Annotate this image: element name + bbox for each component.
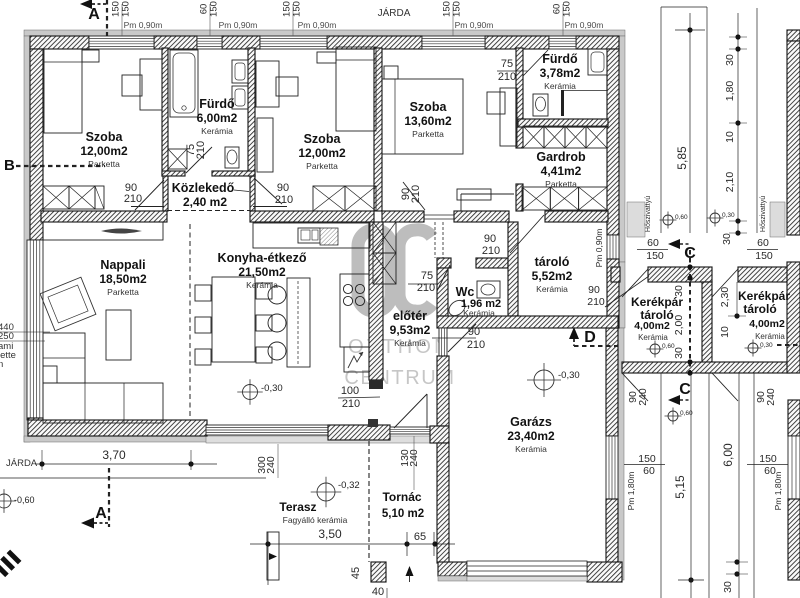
svg-text:Pm 0,90m: Pm 0,90m [298, 20, 337, 30]
svg-text:2,30: 2,30 [719, 287, 731, 308]
svg-text:60: 60 [757, 237, 769, 249]
svg-text:Közlekedő: Közlekedő [172, 181, 235, 195]
svg-text:Hőszivattyú: Hőszivattyú [760, 196, 767, 232]
svg-text:150: 150 [452, 1, 463, 17]
svg-text:150: 150 [646, 250, 664, 262]
svg-text:150: 150 [121, 1, 132, 17]
svg-text:Parketta: Parketta [412, 129, 444, 139]
svg-text:Nappali: Nappali [100, 258, 145, 272]
svg-text:Pm 0,90m: Pm 0,90m [565, 20, 604, 30]
svg-text:210: 210 [195, 141, 207, 159]
svg-text:Parketta: Parketta [107, 287, 139, 297]
svg-text:Fürdő: Fürdő [542, 52, 578, 66]
svg-text:Szoba: Szoba [304, 132, 342, 146]
svg-text:150: 150 [759, 453, 777, 465]
svg-text:150: 150 [209, 1, 220, 17]
svg-text:JÁRDA: JÁRDA [378, 6, 411, 19]
svg-text:D: D [584, 329, 596, 346]
svg-text:30: 30 [673, 347, 685, 359]
svg-text:5,10 m2: 5,10 m2 [382, 508, 424, 520]
svg-text:1,80: 1,80 [724, 81, 736, 102]
svg-text:150: 150 [638, 453, 656, 465]
svg-text:6,00m2: 6,00m2 [197, 111, 238, 125]
svg-text:A: A [88, 6, 100, 23]
svg-text:10: 10 [719, 326, 731, 338]
svg-text:0,30: 0,30 [760, 342, 773, 349]
svg-text:5,15: 5,15 [673, 475, 687, 499]
svg-text:0,30: 0,30 [722, 212, 735, 219]
svg-text:Kerámia: Kerámia [246, 280, 278, 290]
svg-text:30: 30 [722, 581, 734, 593]
svg-text:45: 45 [350, 567, 362, 579]
svg-text:23,40m2: 23,40m2 [507, 429, 555, 443]
svg-text:Terasz: Terasz [279, 500, 316, 514]
svg-text:Kerámia: Kerámia [544, 81, 576, 91]
svg-text:30: 30 [721, 233, 733, 245]
svg-text:210: 210 [275, 194, 293, 206]
svg-text:Wc: Wc [456, 285, 475, 299]
svg-text:10: 10 [724, 131, 736, 143]
svg-text:90: 90 [277, 182, 289, 194]
svg-text:Kerámia: Kerámia [394, 338, 426, 348]
svg-text:2,40 m2: 2,40 m2 [183, 195, 227, 209]
svg-text:tároló: tároló [743, 302, 776, 316]
svg-text:30: 30 [673, 285, 685, 297]
svg-text:210: 210 [410, 185, 422, 203]
svg-text:12,00m2: 12,00m2 [80, 144, 128, 158]
svg-text:90: 90 [588, 284, 600, 296]
svg-text:210: 210 [587, 296, 605, 308]
svg-text:21,50m2: 21,50m2 [238, 265, 286, 279]
svg-text:Pm 0,90m: Pm 0,90m [455, 20, 494, 30]
svg-text:0,60: 0,60 [662, 343, 675, 350]
svg-text:előtér: előtér [393, 309, 427, 323]
svg-text:150: 150 [755, 250, 773, 262]
svg-text:240: 240 [637, 388, 649, 406]
svg-text:4,00m2: 4,00m2 [634, 320, 670, 332]
svg-text:Parketta: Parketta [88, 159, 120, 169]
svg-text:30: 30 [724, 54, 736, 66]
svg-text:3,50: 3,50 [318, 527, 342, 541]
svg-text:Pm 0,90m: Pm 0,90m [124, 20, 163, 30]
svg-text:Tornác: Tornác [382, 490, 421, 504]
svg-text:-0,30: -0,30 [558, 370, 580, 381]
svg-text:Pm 1,80m: Pm 1,80m [773, 472, 783, 511]
svg-text:9,53m2: 9,53m2 [390, 323, 431, 337]
svg-text:5,85: 5,85 [675, 146, 689, 170]
svg-text:Fagyálló kerámia: Fagyálló kerámia [283, 515, 348, 525]
svg-text:60: 60 [647, 237, 659, 249]
svg-text:-0,32: -0,32 [338, 480, 360, 491]
svg-text:Kerámia: Kerámia [638, 333, 668, 342]
svg-text:-0,30: -0,30 [261, 383, 283, 394]
svg-text:210: 210 [498, 71, 516, 83]
svg-text:C: C [679, 381, 691, 398]
svg-text:Parketta: Parketta [545, 179, 577, 189]
svg-text:2,10: 2,10 [724, 172, 736, 193]
svg-text:Kerékpár: Kerékpár [738, 289, 790, 303]
svg-text:150: 150 [562, 1, 573, 17]
svg-text:4,41m2: 4,41m2 [541, 164, 582, 178]
svg-text:240: 240 [765, 388, 777, 406]
svg-text:90: 90 [484, 233, 496, 245]
svg-text:Parketta: Parketta [306, 161, 338, 171]
svg-text:150: 150 [292, 1, 303, 17]
svg-text:Pm 0,90m: Pm 0,90m [594, 229, 604, 268]
svg-text:Kerámia: Kerámia [536, 284, 568, 294]
svg-text:13,60m2: 13,60m2 [404, 114, 452, 128]
svg-text:-0,60: -0,60 [14, 495, 35, 505]
svg-text:Szoba: Szoba [86, 130, 124, 144]
svg-text:Szoba: Szoba [410, 100, 448, 114]
svg-text:Pm 1,80m: Pm 1,80m [626, 472, 636, 511]
svg-text:Fürdő: Fürdő [199, 97, 235, 111]
svg-text:4,00m2: 4,00m2 [749, 318, 785, 330]
svg-text:40: 40 [372, 586, 384, 598]
svg-text:B: B [4, 157, 15, 174]
svg-text:Kerámia: Kerámia [463, 308, 495, 318]
svg-text:100: 100 [341, 385, 359, 397]
svg-text:A: A [95, 505, 107, 522]
svg-text:5,52m2: 5,52m2 [532, 269, 573, 283]
svg-text:3,70: 3,70 [102, 448, 126, 462]
svg-text:Kerámia: Kerámia [755, 332, 785, 341]
svg-text:0,60: 0,60 [675, 214, 688, 221]
svg-text:2,00: 2,00 [673, 315, 685, 336]
svg-text:Pm 0,90m: Pm 0,90m [219, 20, 258, 30]
svg-text:210: 210 [467, 339, 485, 351]
svg-text:tároló: tároló [535, 255, 570, 269]
svg-text:n: n [0, 359, 3, 370]
svg-text:240: 240 [265, 456, 277, 474]
svg-text:Garázs: Garázs [510, 415, 552, 429]
svg-text:75: 75 [501, 58, 513, 70]
svg-text:Kerámia: Kerámia [201, 126, 233, 136]
svg-text:Gardrob: Gardrob [536, 150, 586, 164]
svg-text:65: 65 [414, 531, 426, 543]
svg-text:JÁRDA: JÁRDA [6, 458, 38, 469]
svg-text:210: 210 [342, 398, 360, 410]
svg-text:3,78m2: 3,78m2 [540, 66, 581, 80]
svg-text:60: 60 [643, 465, 655, 477]
svg-text:90: 90 [468, 326, 480, 338]
svg-text:Hőszivattyú: Hőszivattyú [645, 196, 652, 232]
svg-text:Konyha-étkező: Konyha-étkező [218, 251, 307, 265]
svg-text:210: 210 [124, 193, 142, 205]
svg-text:210: 210 [482, 245, 500, 257]
svg-text:6,00: 6,00 [721, 443, 735, 467]
svg-text:Kerámia: Kerámia [515, 444, 547, 454]
svg-text:18,50m2: 18,50m2 [99, 272, 147, 286]
svg-text:12,00m2: 12,00m2 [298, 146, 346, 160]
svg-text:75: 75 [421, 270, 433, 282]
